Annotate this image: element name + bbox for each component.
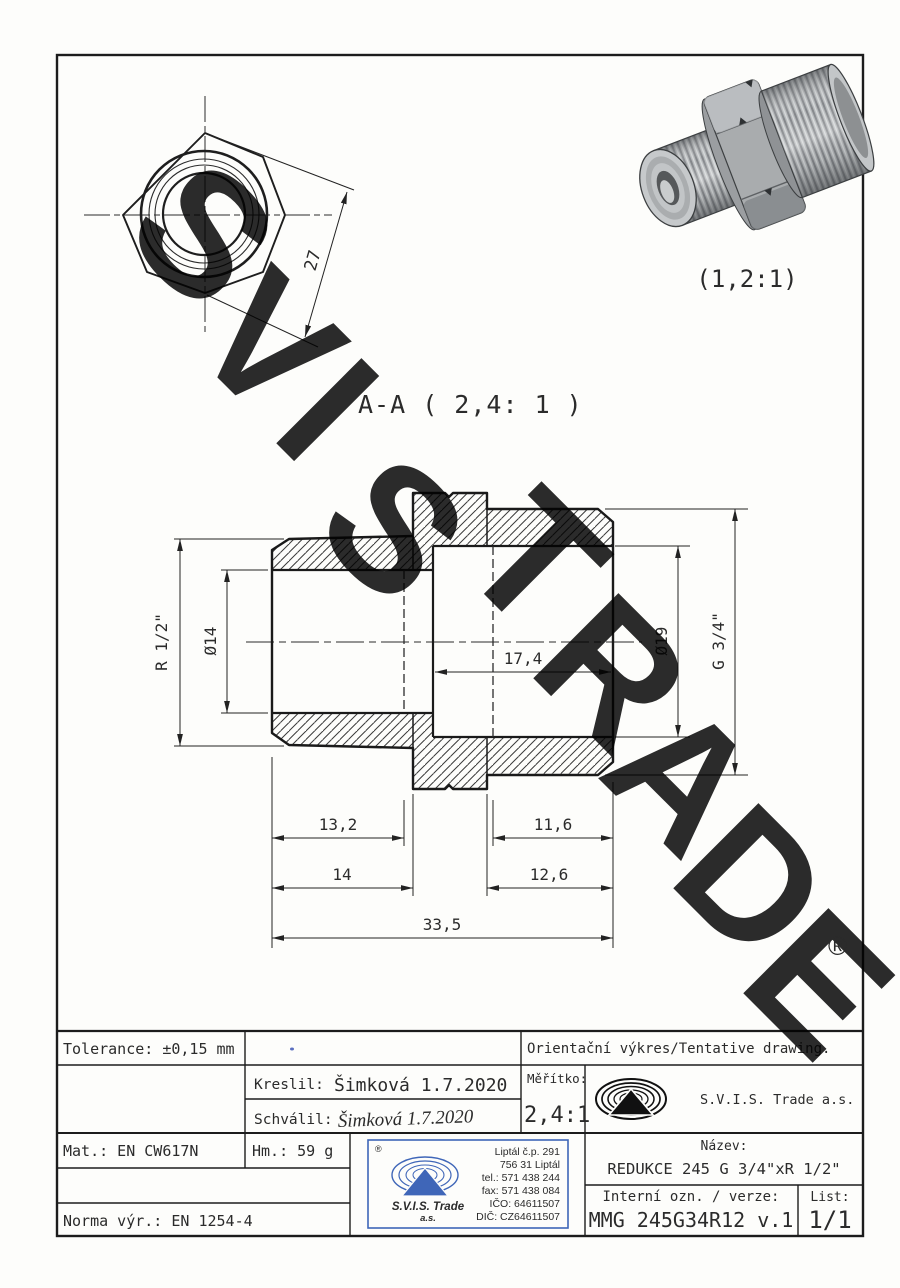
ink-speck (290, 1048, 294, 1051)
watermark-registered: ® (828, 931, 847, 961)
kreslil-value: Šimková 1.7.2020 (334, 1074, 507, 1096)
interni-value: MMG 245G34R12 v.1 (589, 1208, 794, 1232)
nazev-value: REDUKCE 245 G 3/4"xR 1/2" (607, 1160, 840, 1178)
list-value: 1/1 (808, 1206, 851, 1234)
kreslil-label: Kreslil: (254, 1077, 324, 1093)
nazev-label: Název: (701, 1139, 748, 1154)
list-label: List: (810, 1190, 849, 1205)
stamp-address-line: 756 31 Liptál (500, 1159, 560, 1171)
tolerance-text: Tolerance: ±0,15 mm (63, 1040, 235, 1058)
stamp-address-line: tel.: 571 438 244 (482, 1172, 560, 1184)
stamp-address-line: DIČ: CZ64611507 (476, 1210, 560, 1223)
stamp-address-line: IČO: 64611507 (490, 1197, 561, 1210)
drawing-sheet: 27 (1,2:1) (0, 0, 900, 1288)
schvalil-label: Schválil: (254, 1112, 333, 1128)
dim-label-12-6: 12,6 (530, 865, 569, 884)
interni-label: Interní ozn. / verze: (602, 1189, 779, 1205)
mat-text: Mat.: EN CW617N (63, 1142, 198, 1160)
dim-label-left-bore: Ø14 (201, 627, 220, 656)
company-name: S.V.I.S. Trade a.s. (700, 1092, 854, 1108)
dim-label-14: 14 (332, 865, 351, 884)
stamp-company-line2: a.s. (420, 1213, 436, 1224)
dim-label-left-thread: R 1/2" (152, 613, 171, 671)
dim-label-33-5: 33,5 (423, 915, 462, 934)
meritko-value: 2,4:1 (524, 1103, 590, 1128)
dim-label-11-6: 11,6 (534, 815, 573, 834)
stamp-registered: ® (375, 1144, 382, 1154)
section-title: A-A ( 2,4: 1 ) (358, 390, 583, 419)
stamp-address-line: Liptál č.p. 291 (495, 1146, 561, 1158)
hatch-left-bottom (272, 713, 413, 748)
stamp-company-line1: S.V.I.S. Trade (392, 1201, 465, 1213)
stamp-address-line: fax: 571 438 084 (482, 1185, 560, 1197)
pictorial-scale-label: (1,2:1) (696, 265, 797, 293)
meritko-label: Měřítko: (527, 1071, 587, 1086)
dim-label-13-2: 13,2 (319, 815, 358, 834)
hm-text: Hm.: 59 g (252, 1142, 333, 1160)
norma-text: Norma výr.: EN 1254-4 (63, 1212, 253, 1230)
drawing-canvas: 27 (1,2:1) (0, 0, 900, 1288)
